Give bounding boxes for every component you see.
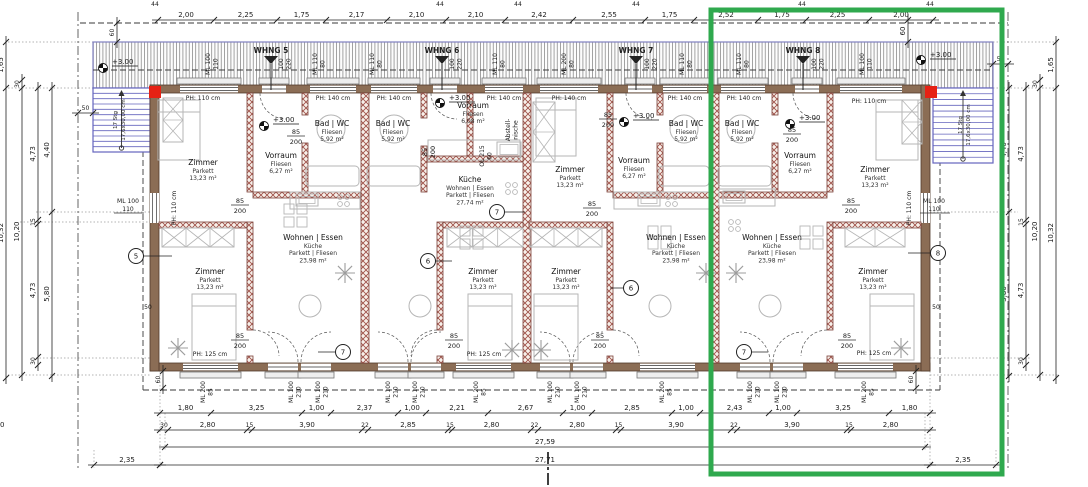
- room-name: Wohnen | Essen: [283, 233, 343, 242]
- room-sublabel: 6,27 m²: [622, 173, 646, 180]
- room-sublabel: 6,27 m²: [788, 168, 812, 175]
- stair-count-label: 17 Stg: [958, 116, 964, 134]
- parapet-height-label: PH: 110 cm: [852, 98, 887, 105]
- bed: [158, 100, 200, 160]
- room-sublabel: 13,23 m²: [861, 182, 889, 189]
- room-sublabel: Fliesen: [462, 111, 483, 118]
- opening-size-label: 210: [555, 386, 562, 398]
- dim-value: 3,90: [299, 421, 315, 429]
- dim-value: 1,65: [1047, 57, 1055, 73]
- room-sublabel: Fliesen: [382, 129, 403, 136]
- bed: [876, 100, 918, 160]
- opening-size-label: 210: [420, 386, 427, 398]
- dim-value: 60: [109, 29, 116, 37]
- red-corner-marker: [925, 86, 937, 98]
- opening-size-label: 220: [652, 58, 659, 70]
- small-dim-label: 50: [932, 304, 940, 311]
- small-dim-label: 44: [514, 1, 522, 8]
- window-sill: [537, 78, 601, 84]
- axis-number: 8: [936, 250, 940, 258]
- room-sublabel: 5,92 m²: [381, 136, 405, 143]
- door-size-label: 200: [448, 342, 460, 350]
- room-sublabel: 6,08 m²: [461, 118, 485, 125]
- room-name: Bad | WC: [376, 119, 410, 128]
- interior-wall: [657, 93, 663, 115]
- room-name: Vorraum: [618, 156, 650, 165]
- room-sublabel: 13,23 m²: [189, 175, 217, 182]
- room-name: Zimmer: [551, 267, 581, 276]
- room-name: Zimmer: [860, 165, 890, 174]
- interior-wall: [827, 93, 833, 192]
- opening-size-label: 110: [867, 58, 874, 70]
- room-sublabel: 13,23 m²: [196, 284, 224, 291]
- dim-value: 2,10: [409, 11, 425, 19]
- room-sublabel: Küche: [763, 243, 782, 250]
- level-marker-icon: [440, 103, 445, 108]
- opening-size-label: 85: [667, 388, 674, 396]
- opening-size-label: 220: [286, 58, 293, 70]
- interior-wall: [247, 356, 253, 363]
- top-opening: [180, 86, 238, 93]
- door-size-label: 200: [234, 342, 246, 350]
- window-sill: [660, 78, 710, 84]
- room-sublabel: Fliesen: [675, 129, 696, 136]
- door-swing-arc: [301, 332, 331, 362]
- window-sill: [625, 78, 655, 84]
- door-size-label: 85: [236, 332, 244, 340]
- red-corner-marker: [149, 86, 161, 98]
- parapet-height-label: PH: 140 cm: [668, 95, 703, 102]
- dim-value: 15: [246, 422, 254, 429]
- window-sill: [482, 78, 526, 84]
- room-name: Zimmer: [188, 158, 218, 167]
- interior-wall: [827, 222, 833, 330]
- level-marker-icon: [620, 118, 625, 123]
- stove-burner: [513, 190, 518, 195]
- room-sublabel: Küche: [667, 243, 686, 250]
- dim-value: 3,25: [249, 404, 265, 412]
- opening-size-label: ML 100: [315, 381, 322, 403]
- room-sublabel: Fliesen: [789, 161, 810, 168]
- room-sublabel: 6,27 m²: [269, 168, 293, 175]
- stove-burner: [506, 183, 511, 188]
- dim-value: 1,75: [294, 11, 310, 19]
- room-sublabel: Parkett | Fliesen: [446, 192, 494, 199]
- level-value: +3.00: [112, 58, 133, 66]
- door-size-label: 85: [843, 332, 851, 340]
- stove-burner: [506, 190, 511, 195]
- dim-value: 60: [908, 376, 915, 384]
- parapet-height-label: PH: 140 cm: [727, 95, 762, 102]
- room-sublabel: Parkett | Fliesen: [748, 250, 796, 257]
- opening-size-label: 100: [449, 58, 456, 70]
- top-opening: [540, 86, 598, 93]
- axis-number: 7: [742, 349, 746, 357]
- opening-size-label: ML 100: [412, 381, 419, 403]
- opening-size-label: 100: [811, 58, 818, 70]
- level-marker-icon: [436, 99, 441, 104]
- dim-value: 2,55: [601, 11, 617, 19]
- door-size-label: 85: [421, 148, 429, 156]
- dim-value: 22: [730, 422, 738, 429]
- top-opening: [310, 86, 356, 93]
- parapet-height-label: PH: 140 cm: [487, 95, 522, 102]
- interior-wall: [247, 93, 253, 192]
- dim-value: 30: [1018, 357, 1025, 365]
- annotation-vtext: nische: [513, 120, 520, 140]
- dim-value: 3,90: [668, 421, 684, 429]
- interior-wall: [437, 356, 443, 363]
- room-sublabel: Fliesen: [731, 129, 752, 136]
- dim-value: 5,80: [43, 286, 51, 302]
- window-sill: [570, 372, 606, 378]
- door-swing-arc: [613, 330, 639, 356]
- stove-burner: [338, 202, 343, 207]
- level-value: +3.00: [449, 94, 470, 102]
- stove-burner: [673, 202, 678, 207]
- opening-size-label: ML 200: [561, 53, 568, 75]
- interior-wall: [437, 222, 443, 330]
- stair-count-label: 17,6x30,00 cm: [121, 99, 127, 140]
- window-sill: [718, 78, 768, 84]
- bottom-opening: [640, 364, 695, 371]
- window-sill: [265, 372, 301, 378]
- parapet-height-label: PH: 125 cm: [193, 351, 228, 358]
- round-furniture: [759, 295, 781, 317]
- stove-burner: [666, 202, 671, 207]
- window-sill: [737, 372, 773, 378]
- room-sublabel: Fliesen: [321, 129, 342, 136]
- dim-value: 30: [1032, 80, 1039, 88]
- stove-burner: [729, 227, 734, 232]
- door-size-label: 85: [588, 200, 596, 208]
- room-sublabel: Parkett: [864, 175, 886, 182]
- room-name: Küche: [459, 175, 482, 184]
- dim-value: 2,10: [468, 11, 484, 19]
- dim-value: 1,00: [678, 404, 694, 412]
- opening-size-label: ML 100: [117, 198, 139, 205]
- room-name: Vorraum: [784, 151, 816, 160]
- opening-size-label: 85: [869, 388, 876, 396]
- opening-size-label: 210: [296, 386, 303, 398]
- dim-value: 2,21: [449, 404, 465, 412]
- door-size-label: 85: [596, 332, 604, 340]
- dim-value: 2,35: [955, 456, 971, 464]
- dim-value: 2,85: [624, 404, 640, 412]
- parapet-height-label: PH: 110 cm: [906, 191, 913, 226]
- dim-value: 30: [160, 422, 168, 429]
- door-size-label: 200: [786, 136, 798, 144]
- window-sill: [837, 78, 905, 84]
- room-sublabel: 13,23 m²: [859, 284, 887, 291]
- bottom-opening: [183, 364, 238, 371]
- window-sill: [259, 78, 289, 84]
- bottom-opening: [456, 364, 511, 371]
- door-swing-arc: [378, 332, 408, 362]
- axis-number: 7: [341, 349, 345, 357]
- window-sill: [792, 78, 822, 84]
- dim-value: 30: [0, 421, 4, 429]
- dim-value: 2,43: [727, 404, 743, 412]
- door-swing-arc: [773, 332, 803, 362]
- door-size-label: 200: [845, 207, 857, 215]
- top-opening: [485, 86, 523, 93]
- interior-wall: [613, 192, 711, 198]
- opening-size-label: ML 110: [492, 53, 499, 75]
- level-marker-icon: [264, 126, 269, 131]
- small-dim-label: 44: [632, 1, 640, 8]
- dim-value: 1,00: [404, 404, 420, 412]
- door-size-label: 200: [602, 121, 614, 129]
- interior-wall: [719, 192, 827, 198]
- opening-size-label: 80: [569, 60, 576, 68]
- door-size-label: 85: [236, 197, 244, 205]
- dim-value: 1,80: [178, 404, 194, 412]
- room-sublabel: Parkett: [472, 277, 494, 284]
- room-sublabel: 23,98 m²: [758, 257, 786, 264]
- dim-value: 2,80: [883, 421, 899, 429]
- room-sublabel: 23,98 m²: [299, 257, 327, 264]
- room-sublabel: 5,92 m²: [674, 136, 698, 143]
- dim-value: 27,71: [535, 456, 555, 464]
- room-name: Vorraum: [265, 151, 297, 160]
- level-value: +3.00: [930, 51, 951, 59]
- room-sublabel: 27,74 m²: [456, 199, 484, 206]
- opening-size-label: 210: [782, 386, 789, 398]
- dim-value: 2,37: [357, 404, 373, 412]
- interior-wall: [772, 93, 778, 115]
- opening-size-label: ML 110: [736, 53, 743, 75]
- dim-value: 2,67: [518, 404, 534, 412]
- chair: [813, 226, 823, 236]
- stove-burner: [736, 227, 741, 232]
- opening-size-label: 210: [582, 386, 589, 398]
- level-marker-icon: [624, 122, 629, 127]
- room-name: Wohnen | Essen: [742, 233, 802, 242]
- window-sill: [375, 372, 411, 378]
- room-name: Zimmer: [555, 165, 585, 174]
- dim-value: 15: [615, 422, 623, 429]
- room-sublabel: 13,23 m²: [556, 182, 584, 189]
- small-dim-label: 44: [926, 1, 934, 8]
- room-name: Bad | WC: [669, 119, 703, 128]
- apartment-label: WHNG 5: [254, 46, 289, 55]
- room-sublabel: 13,23 m²: [552, 284, 580, 291]
- dim-value: 15: [845, 422, 853, 429]
- opening-size-label: 80: [500, 60, 507, 68]
- room-sublabel: 5,92 m²: [320, 136, 344, 143]
- round-furniture: [649, 295, 671, 317]
- door-size-label: 200: [594, 342, 606, 350]
- door-size-label: 200: [234, 207, 246, 215]
- room-sublabel: Fliesen: [623, 166, 644, 173]
- window-sill: [770, 372, 806, 378]
- small-dim-label: 44: [798, 1, 806, 8]
- annotation-vtext: OL 215: [479, 145, 486, 167]
- top-opening: [721, 86, 765, 93]
- opening-size-label: ML 100: [747, 381, 754, 403]
- opening-size-label: ML 200: [861, 381, 868, 403]
- dim-value: 50: [82, 105, 90, 112]
- dim-value: 1,75: [662, 11, 678, 19]
- door-swing-arc: [801, 330, 827, 356]
- top-opening: [663, 86, 707, 93]
- opening-size-label: 80: [377, 60, 384, 68]
- dim-value: 10,20: [13, 221, 21, 241]
- level-marker-icon: [260, 122, 265, 127]
- level-marker-icon: [786, 120, 791, 125]
- opening-size-label: ML 100: [205, 53, 212, 75]
- stair-count-label: 17 Stg: [113, 111, 119, 129]
- dim-value: 4,40: [43, 142, 51, 158]
- dim-value: 2,80: [484, 421, 500, 429]
- axis-number: 6: [426, 258, 431, 266]
- bathtub: [718, 166, 771, 186]
- dim-value: 60: [155, 376, 162, 384]
- window-sill: [835, 372, 896, 378]
- room-sublabel: 13,23 m²: [469, 284, 497, 291]
- interior-wall: [607, 356, 613, 363]
- opening-size-label: 80: [687, 60, 694, 68]
- interior-wall: [607, 93, 613, 192]
- interior-wall: [772, 143, 778, 192]
- parapet-height-label: PH: 110 cm: [186, 95, 221, 102]
- door-size-label: 85: [847, 197, 855, 205]
- opening-size-label: 110: [928, 206, 940, 213]
- interior-wall: [827, 356, 833, 363]
- opening-size-label: ML 100: [859, 53, 866, 75]
- room-sublabel: Parkett: [199, 277, 221, 284]
- dim-value: 2,35: [119, 456, 135, 464]
- dim-value: 15: [446, 422, 454, 429]
- bathtub: [659, 166, 709, 186]
- small-dim-label: 44: [436, 1, 444, 8]
- door-swing-arc: [411, 332, 441, 362]
- room-name: Wohnen | Essen: [646, 233, 706, 242]
- dim-value: 10,20: [1031, 221, 1039, 241]
- level-value: +3.00: [273, 116, 294, 124]
- room-sublabel: Parkett: [192, 168, 214, 175]
- dim-value: 30: [14, 80, 21, 88]
- opening-size-label: ML 100: [774, 381, 781, 403]
- door-swing-arc: [411, 330, 437, 356]
- dim-value: 2,25: [238, 11, 254, 19]
- bathtub: [367, 166, 420, 186]
- opening-size-label: ML 100: [923, 198, 945, 205]
- parapet-height-label: PH: 140 cm: [316, 95, 351, 102]
- top-opening: [840, 86, 902, 93]
- opening-size-label: 80: [744, 60, 751, 68]
- parapet-height-label: PH: 140 cm: [552, 95, 587, 102]
- dim-value: 2,85: [400, 421, 416, 429]
- top-opening: [371, 86, 417, 93]
- room-sublabel: Küche: [304, 243, 323, 250]
- opening-size-label: ML 200: [200, 381, 207, 403]
- interior-wall: [529, 222, 607, 228]
- dim-value: 3,90: [784, 421, 800, 429]
- interior-wall: [302, 93, 308, 115]
- chair: [813, 239, 823, 249]
- interior-wall: [421, 93, 427, 118]
- dim-value: 15: [1018, 218, 1025, 226]
- dim-value: 30: [30, 357, 37, 365]
- room-sublabel: Fliesen: [270, 161, 291, 168]
- window-sill: [430, 78, 460, 84]
- dim-value: 4,73: [29, 283, 37, 299]
- window-sill: [637, 372, 698, 378]
- room-name: Zimmer: [468, 267, 498, 276]
- opening-size-label: 110: [213, 58, 220, 70]
- opening-size-label: 85: [208, 388, 215, 396]
- dim-value: 4,73: [1017, 283, 1025, 299]
- dim-value: 2,00: [178, 11, 194, 19]
- stove-burner: [736, 220, 741, 225]
- room-sublabel: Parkett | Fliesen: [652, 250, 700, 257]
- door-size-label: 200: [290, 138, 302, 146]
- stove-burner: [345, 202, 350, 207]
- dim-value: 1,80: [902, 404, 918, 412]
- window-sill: [408, 372, 444, 378]
- small-dim-label: 50: [144, 304, 152, 311]
- parapet-height-label: PH: 125 cm: [857, 350, 892, 357]
- room-name: Bad | WC: [315, 119, 349, 128]
- parapet-height-label: PH: 125 cm: [467, 351, 502, 358]
- dim-value: 2,42: [531, 11, 547, 19]
- furniture-layer: [158, 98, 922, 360]
- window-sill: [537, 372, 573, 378]
- dim-value: 27,59: [535, 438, 555, 446]
- apartment-label: WHNG 6: [425, 46, 460, 55]
- side-window: [150, 193, 159, 223]
- parapet-height-label: PH: 140 cm: [377, 95, 412, 102]
- opening-size-label: 210: [393, 386, 400, 398]
- dim-value: 2,80: [569, 421, 585, 429]
- dim-value: 2,17: [349, 11, 365, 19]
- dim-value: 1,00: [570, 404, 586, 412]
- dim-value: 2,80: [200, 421, 216, 429]
- bed: [536, 98, 576, 156]
- opening-size-label: 210: [323, 386, 330, 398]
- apartment-label: WHNG 8: [786, 46, 821, 55]
- dim-value: 10,32: [1047, 223, 1055, 243]
- room-name: Bad | WC: [725, 119, 759, 128]
- opening-size-label: ML 100: [547, 381, 554, 403]
- opening-size-label: 110: [122, 206, 134, 213]
- dim-value: 3,25: [835, 404, 851, 412]
- stair-count-label: 17,6x30,00 cm: [966, 104, 972, 145]
- apartment-label: WHNG 7: [619, 46, 654, 55]
- window-sill: [180, 372, 241, 378]
- opening-size-label: ML 200: [659, 381, 666, 403]
- parapet-height-label: PH: 110 cm: [171, 191, 178, 226]
- opening-size-label: ML 100: [385, 381, 392, 403]
- chair: [284, 217, 294, 227]
- room-sublabel: Parkett: [559, 175, 581, 182]
- opening-size-label: 220: [819, 58, 826, 70]
- opening-size-label: ML 200: [473, 381, 480, 403]
- opening-size-label: 100: [644, 58, 651, 70]
- room-name: Zimmer: [858, 267, 888, 276]
- dim-value: 4,73: [29, 146, 37, 162]
- opening-size-label: 100: [278, 58, 285, 70]
- level-value: +3.00: [633, 112, 654, 120]
- small-dim-label: 44: [151, 1, 159, 8]
- door-swing-arc: [268, 332, 298, 362]
- interior-wall: [361, 93, 369, 363]
- opening-size-label: 220: [457, 58, 464, 70]
- room-sublabel: Wohnen | Essen: [446, 185, 494, 192]
- dim-value: 1,00: [775, 404, 791, 412]
